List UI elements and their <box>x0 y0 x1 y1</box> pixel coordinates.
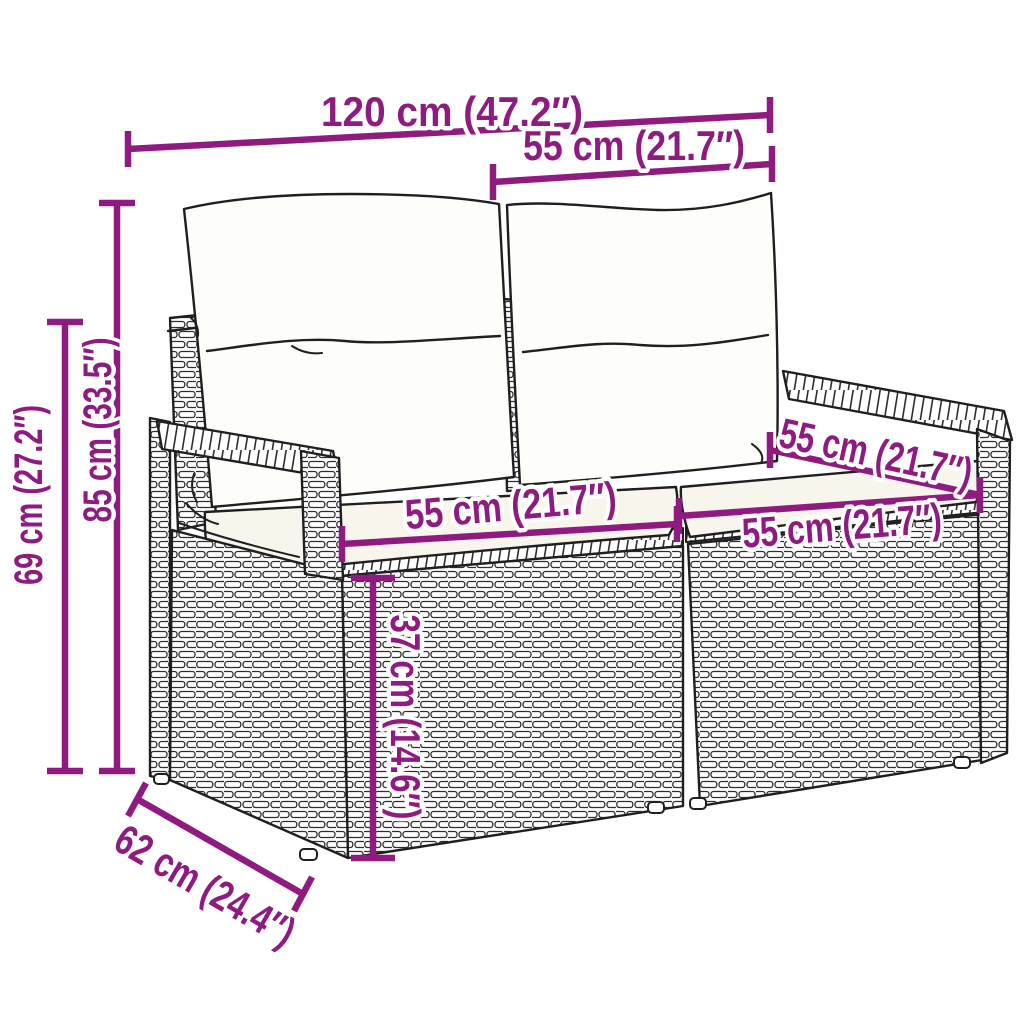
product-dimension-diagram: 120 cm (47.2″) 55 cm (21.7″) 85 cm (33.5… <box>0 0 1024 1024</box>
back-section-width-label: 55 cm (21.7″) <box>523 122 745 169</box>
seat-base-right <box>688 514 984 806</box>
dimension-back-section-width: 55 cm (21.7″) <box>493 122 772 200</box>
total-height-label: 85 cm (33.5″) <box>76 338 120 523</box>
left-base-side-face <box>170 530 348 858</box>
diagram-canvas: 120 cm (47.2″) 55 cm (21.7″) 85 cm (33.5… <box>0 0 1024 1024</box>
back-cushion-right <box>507 193 812 485</box>
dimension-armrest-height: 69 cm (27.2″) <box>7 322 83 771</box>
left-side-wall <box>150 418 170 780</box>
left-armrest-post <box>301 451 343 580</box>
dimension-total-height: 85 cm (33.5″) <box>76 203 135 771</box>
armrest-height-label: 69 cm (27.2″) <box>7 405 51 585</box>
seat-height-label: 37 cm (14.6″) <box>382 615 429 820</box>
